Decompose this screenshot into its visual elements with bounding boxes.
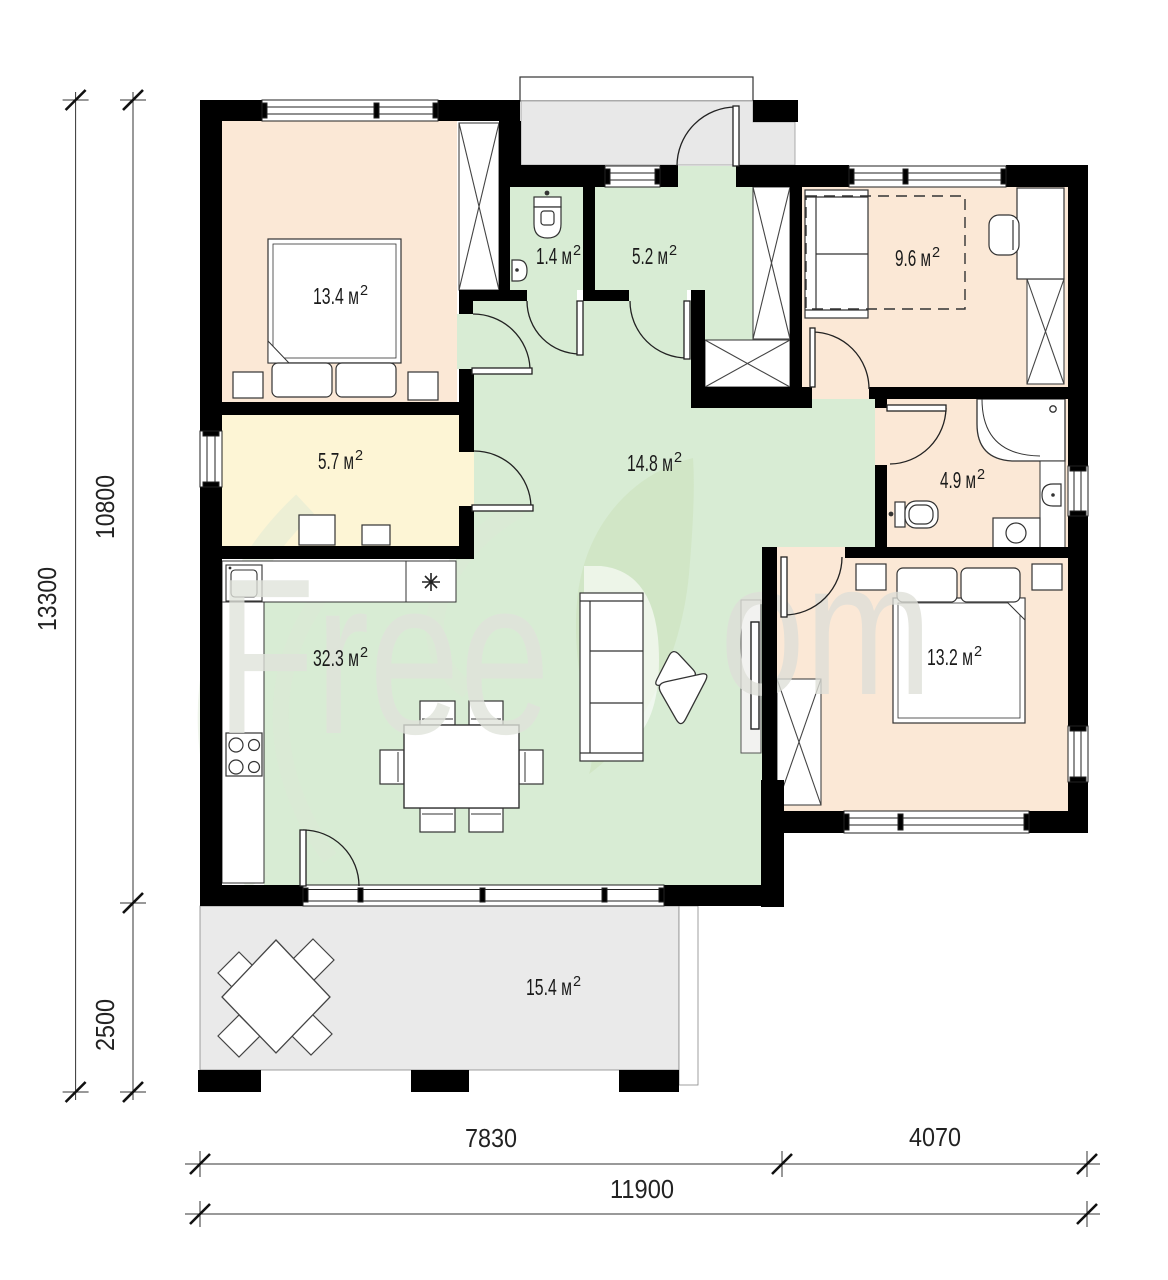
svg-text:4070: 4070 [909,1122,961,1152]
svg-text:13.2 м: 13.2 м [927,644,973,670]
svg-text:4.9 м: 4.9 м [940,467,976,493]
svg-text:2: 2 [573,974,581,990]
svg-text:13.4 м: 13.4 м [313,283,359,309]
svg-text:2: 2 [977,467,985,483]
svg-text:2: 2 [360,645,368,661]
svg-text:5.7 м: 5.7 м [318,448,354,474]
svg-text:5.2 м: 5.2 м [632,243,668,269]
svg-text:10800: 10800 [90,475,120,539]
svg-text:2: 2 [932,245,940,261]
svg-text:2: 2 [573,243,581,259]
svg-text:1.4 м: 1.4 м [536,243,572,269]
svg-text:2: 2 [355,448,363,464]
svg-text:7830: 7830 [465,1123,517,1153]
svg-text:2: 2 [669,243,677,259]
svg-text:9.6 м: 9.6 м [895,245,931,271]
svg-text:2: 2 [674,450,682,466]
svg-text:Free: Free [216,533,550,781]
svg-text:13300: 13300 [32,567,62,631]
svg-text:32.3 м: 32.3 м [313,645,359,671]
svg-text:14.8 м: 14.8 м [627,450,673,476]
svg-text:2: 2 [360,283,368,299]
svg-text:11900: 11900 [610,1174,674,1204]
svg-text:15.4 м: 15.4 м [526,974,572,1000]
svg-text:2500: 2500 [90,999,120,1051]
svg-text:2: 2 [974,644,982,660]
